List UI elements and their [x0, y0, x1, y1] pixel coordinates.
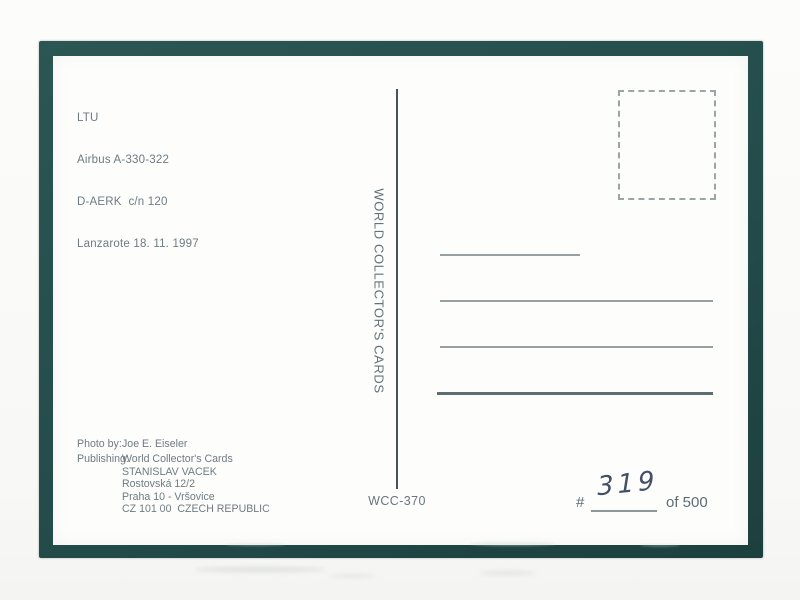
credit-row-publishing: Publishing: World Collector's Cards — [77, 453, 270, 465]
publisher-name: World Collector's Cards — [122, 453, 233, 465]
publisher-spine-text: WORLD COLLECTOR'S CARDS — [372, 188, 387, 393]
photo-by-label: Photo by: — [77, 438, 122, 450]
scanned-postcard-back: LTU Airbus A-330-322 D-AERK c/n 120 Lanz… — [0, 0, 800, 600]
edition-hash-symbol: # — [576, 494, 584, 511]
photographer-name: Joe E. Eiseler — [122, 438, 187, 450]
scan-artifact — [225, 543, 285, 546]
center-divider-rule — [396, 89, 398, 489]
caption-line-aircraft-type: Airbus A-330-322 — [77, 153, 199, 167]
scan-artifact — [640, 544, 680, 547]
publisher-contact-name: STANISLAV VACEK — [122, 466, 217, 478]
address-line-4 — [437, 392, 713, 395]
scan-artifact — [470, 542, 555, 546]
caption-block: LTU Airbus A-330-322 D-AERK c/n 120 Lanz… — [77, 83, 199, 279]
publisher-city: Praha 10 - Vršovice — [122, 491, 215, 503]
edition-handwritten-number: 319 — [597, 466, 659, 502]
caption-line-location-date: Lanzarote 18. 11. 1997 — [77, 237, 199, 251]
credit-row-contact-name: STANISLAV VACEK — [77, 466, 270, 478]
credit-label-spacer — [77, 466, 122, 478]
publishing-label: Publishing: — [77, 453, 122, 465]
address-line-1 — [440, 254, 580, 256]
edition-number-underline — [591, 510, 657, 512]
catalog-number: WCC-370 — [368, 494, 426, 508]
scan-artifact — [330, 574, 375, 578]
scan-artifact — [195, 567, 325, 572]
scan-artifact — [480, 571, 535, 575]
credit-label-spacer — [77, 491, 122, 503]
credit-label-spacer — [77, 478, 122, 490]
publisher-country: CZ 101 00 CZECH REPUBLIC — [122, 503, 270, 515]
credit-row-country: CZ 101 00 CZECH REPUBLIC — [77, 503, 270, 515]
credits-block: Photo by: Joe E. Eiseler Publishing: Wor… — [77, 438, 270, 515]
credit-label-spacer — [77, 503, 122, 515]
address-line-3 — [440, 346, 713, 348]
stamp-box — [618, 90, 716, 200]
credit-row-photo: Photo by: Joe E. Eiseler — [77, 438, 270, 450]
publisher-street: Rostovská 12/2 — [122, 478, 195, 490]
credit-row-street: Rostovská 12/2 — [77, 478, 270, 490]
address-line-2 — [440, 300, 713, 302]
edition-total-label: of 500 — [666, 494, 708, 511]
caption-line-airline: LTU — [77, 111, 199, 125]
caption-line-registration: D-AERK c/n 120 — [77, 195, 199, 209]
credit-row-city: Praha 10 - Vršovice — [77, 491, 270, 503]
